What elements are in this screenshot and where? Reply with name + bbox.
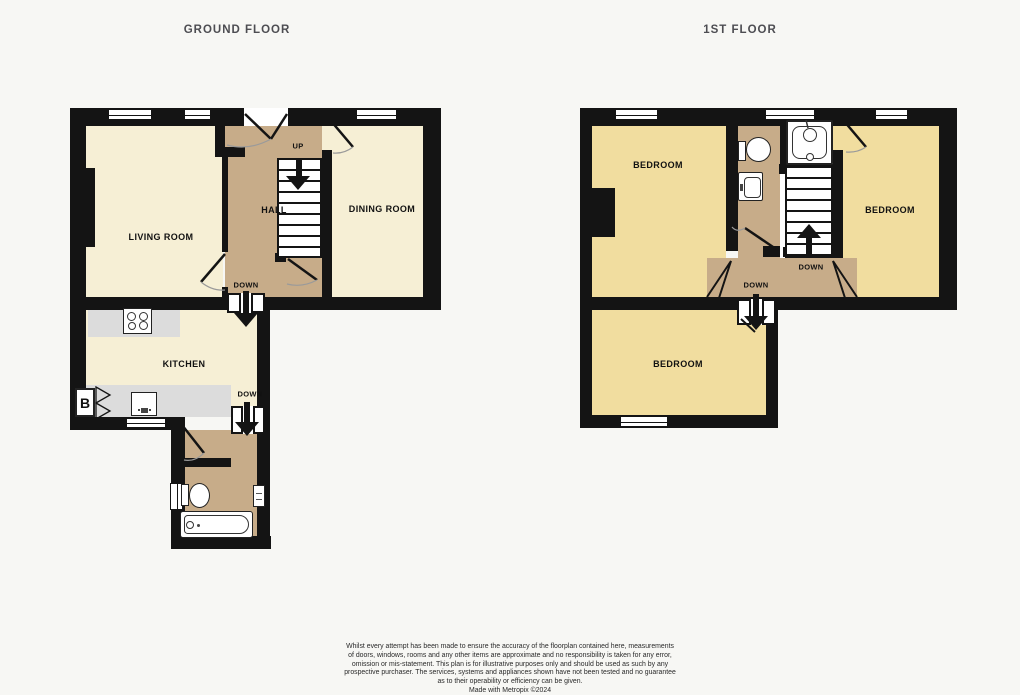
gf-wall-left — [70, 108, 86, 417]
living-room-window-1 — [108, 109, 152, 120]
living-room-window-2 — [184, 109, 211, 120]
gf-wall-entry-stub-v — [215, 110, 225, 157]
floorplan-canvas: GROUND FLOOR 1ST FLOOR UP DOWN DOWN — [0, 0, 1020, 695]
hall-kitchen-doorbox-left — [227, 293, 241, 313]
gf-wall-bathroom-stub — [183, 458, 231, 467]
first-floor-title: 1ST FLOOR — [703, 24, 777, 36]
hall-label: HALL — [261, 205, 287, 215]
gf-toilet-cistern — [181, 484, 189, 506]
shower-icon — [786, 120, 833, 165]
ff-wall-lower-bedroom-bottom — [580, 415, 778, 428]
gf-kitchen-down-label: DOWN — [238, 390, 263, 399]
sink-icon — [131, 392, 157, 416]
ff-stairs-arrow-head — [797, 224, 821, 238]
ff-stairs-down-label: DOWN — [799, 263, 824, 272]
gf-chimney-breast — [84, 168, 95, 247]
bedroom-left-label: BEDROOM — [633, 160, 683, 170]
metropix-credit: Made with Metropix ©2024 — [0, 687, 1020, 695]
kitchen-bathroom-arrow-head — [235, 422, 259, 436]
basin-icon — [738, 172, 763, 201]
bedroom-lower-window — [620, 416, 668, 427]
front-door-opening — [244, 108, 288, 126]
disclaimer: Whilst every attempt has been made to en… — [0, 643, 1020, 695]
toilet-icon — [189, 483, 210, 508]
disclaimer-line: as to their operability or efficiency ca… — [0, 678, 1020, 687]
ff-wall-left — [580, 108, 592, 428]
gf-wall-hall-dining — [322, 150, 332, 297]
ff-toilet-icon — [746, 137, 771, 162]
hall-kitchen-arrow-shaft — [243, 291, 249, 313]
kitchen-worktop-bottom — [86, 385, 231, 417]
hall-kitchen-arrow-head — [234, 313, 258, 327]
ff-wall-bathroom-stub — [763, 246, 780, 257]
living-room-floor — [86, 126, 223, 297]
disclaimer-line: prospective purchaser. The services, sys… — [0, 669, 1020, 678]
boiler-cupboard-icon: B — [75, 388, 95, 417]
disclaimer-line: Whilst every attempt has been made to en… — [0, 643, 1020, 652]
hall-kitchen-doorbox-right — [251, 293, 265, 313]
bath-icon — [180, 511, 253, 538]
ff-toilet-cistern — [738, 141, 746, 161]
gf-wall-living-hall — [222, 157, 228, 252]
ff-wall-right — [939, 108, 957, 310]
landing-window — [765, 109, 815, 120]
landing-bedroom-arrow-shaft — [753, 294, 759, 316]
ff-landing-down-label: DOWN — [744, 281, 769, 290]
ground-floor-title: GROUND FLOOR — [184, 24, 291, 36]
bedroom-lower-label: BEDROOM — [653, 359, 703, 369]
bedroom-right-window — [875, 109, 908, 120]
living-room-label: LIVING ROOM — [129, 232, 194, 242]
ff-chimney-breast — [592, 188, 615, 237]
kitchen-label: KITCHEN — [163, 359, 206, 369]
disclaimer-line: omission or mis-statement. This plan is … — [0, 661, 1020, 670]
dining-door-gap-floor — [322, 126, 332, 152]
landing-bedroom-arrow-head — [744, 316, 768, 330]
radiator-icon — [253, 485, 265, 507]
landing-lower-floor — [707, 258, 857, 297]
ff-wall-stairs-right — [833, 150, 843, 258]
gf-hall-down-label: DOWN — [234, 281, 259, 290]
dining-room-label: DINING ROOM — [349, 204, 415, 214]
dining-room-window — [356, 109, 397, 120]
hob-icon — [123, 308, 152, 334]
gf-wall-entry-stub-h — [225, 147, 245, 157]
gf-stairs-arrow-head — [286, 176, 310, 190]
bedroom-right-label: BEDROOM — [865, 205, 915, 215]
kitchen-bathroom-arrow-shaft — [244, 402, 250, 422]
ff-wall-landing-left — [726, 126, 738, 251]
bedroom-right-door-gap-floor — [833, 126, 843, 150]
gf-stairs-arrow-shaft — [296, 158, 302, 176]
gf-wall-right — [423, 108, 441, 310]
disclaimer-line: of doors, windows, rooms and any other i… — [0, 652, 1020, 661]
ff-stairs-arrow-shaft — [806, 237, 812, 258]
bedroom-left-window — [615, 109, 658, 120]
gf-up-label: UP — [292, 142, 303, 151]
kitchen-window — [126, 418, 166, 428]
